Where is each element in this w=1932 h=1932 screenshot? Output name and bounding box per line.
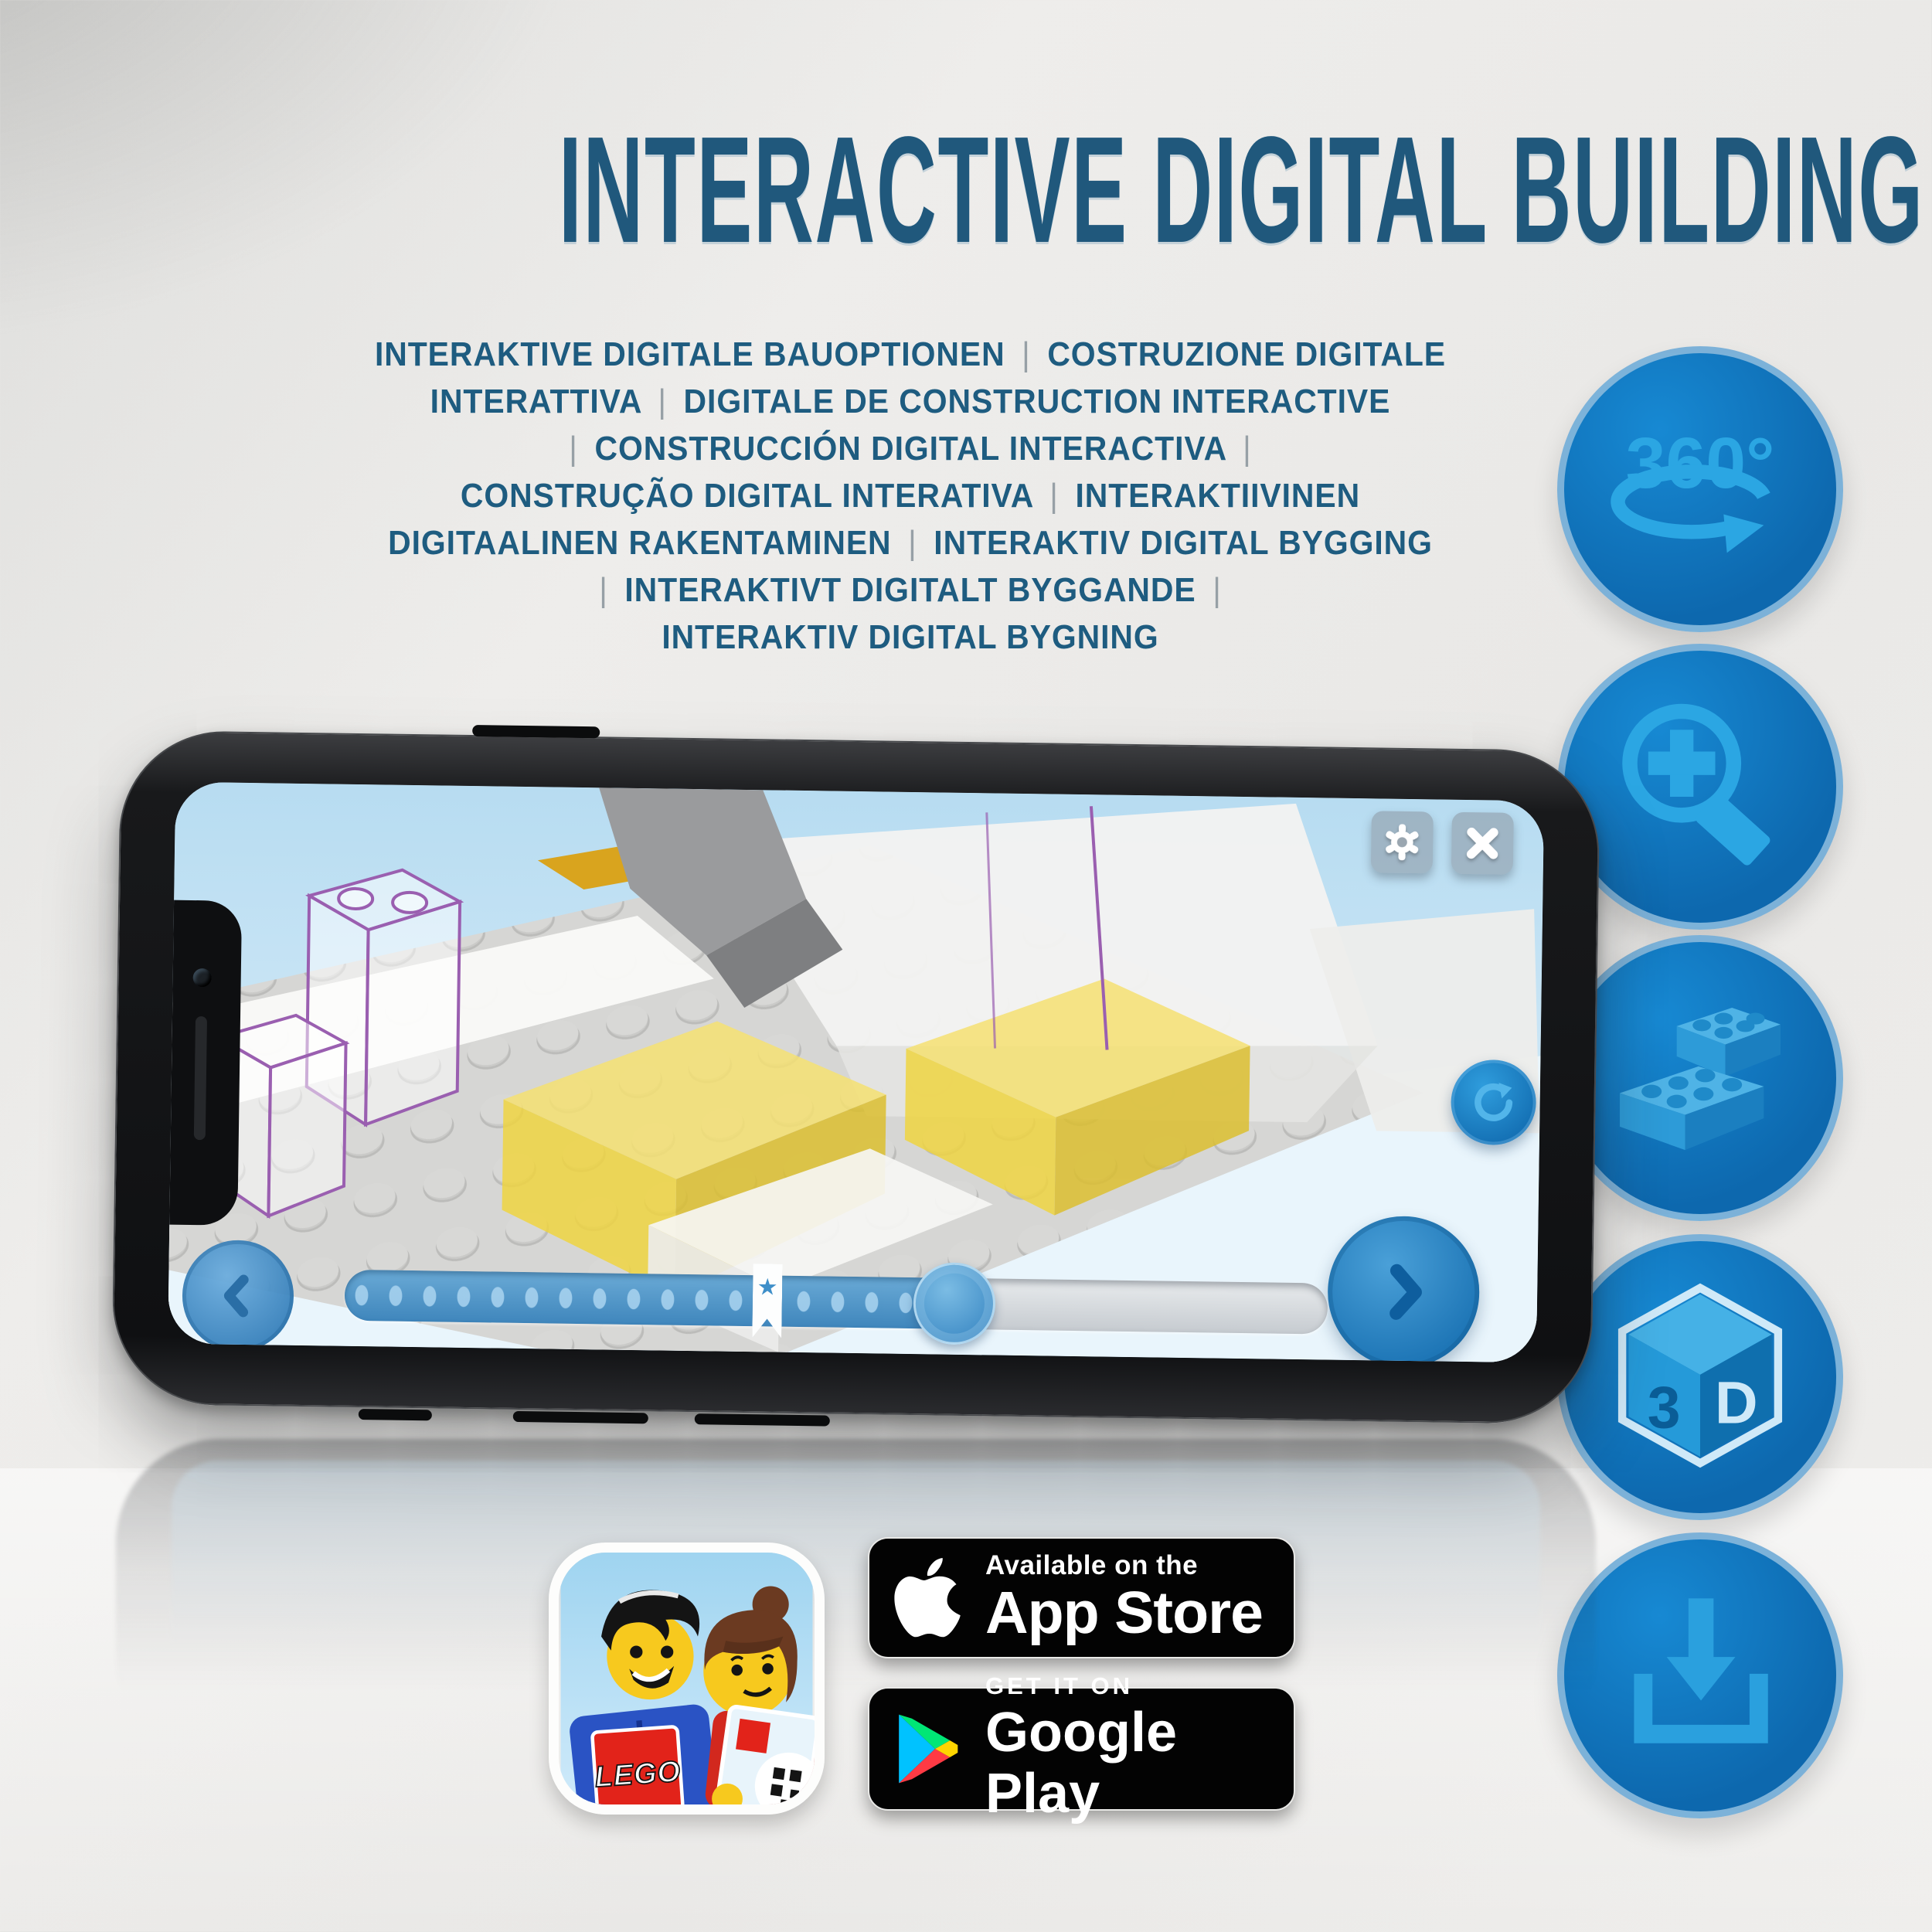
chevron-right-icon — [1368, 1256, 1440, 1328]
phone-reflection — [116, 1439, 1596, 1764]
rotate-arrow-icon — [1468, 1077, 1519, 1128]
download-icon — [1557, 1532, 1843, 1818]
phone-mute-switch — [359, 1409, 432, 1420]
page-title: INTERACTIVE DIGITAL BUILDING — [0, 114, 1932, 266]
google-play-icon — [869, 1713, 985, 1784]
google-play-line2: Google Play — [985, 1702, 1294, 1825]
front-camera — [193, 968, 212, 987]
close-button[interactable] — [1451, 812, 1514, 875]
earpiece-speaker — [194, 1016, 207, 1140]
close-icon — [1462, 823, 1503, 864]
google-play-line1: GET IT ON — [985, 1673, 1294, 1699]
phone-screen: ★ — [168, 782, 1544, 1363]
google-play-badge[interactable]: GET IT ON Google Play — [868, 1687, 1295, 1811]
lego-bricks-icon — [1557, 935, 1843, 1221]
app-store-badge[interactable]: Available on the App Store — [868, 1537, 1295, 1658]
app-store-line1: Available on the — [985, 1551, 1263, 1581]
lego-app-promo-image: { "header": { "title": "INTERACTIVE DIGI… — [0, 0, 1932, 1932]
app-store-line2: App Store — [985, 1582, 1263, 1645]
gear-icon — [1382, 821, 1423, 862]
zoom-in-icon — [1557, 644, 1843, 930]
apple-icon — [869, 1558, 985, 1638]
chevron-left-icon — [210, 1268, 265, 1323]
phone-power-button — [472, 725, 600, 738]
settings-button[interactable] — [1371, 811, 1434, 873]
slider-fill — [345, 1270, 954, 1329]
phone-volume-button — [513, 1411, 648, 1423]
subtitle: INTERAKTIVE DIGITALE BAUOPTIONEN | COSTR… — [246, 331, 1575, 661]
phone-mockup: ★ — [111, 730, 1600, 1425]
3d-view-icon: 3 D — [1557, 1234, 1843, 1520]
phone-volume-button-2 — [695, 1413, 830, 1426]
3d-face-d: D — [1715, 1369, 1758, 1436]
rotate-360-icon: 360° — [1557, 346, 1843, 632]
3d-face-3: 3 — [1648, 1375, 1681, 1441]
lego-logo-text: LEGO — [594, 1756, 682, 1794]
lego-app-icon[interactable]: LEGO — [549, 1543, 825, 1815]
phone-notch — [168, 900, 242, 1226]
